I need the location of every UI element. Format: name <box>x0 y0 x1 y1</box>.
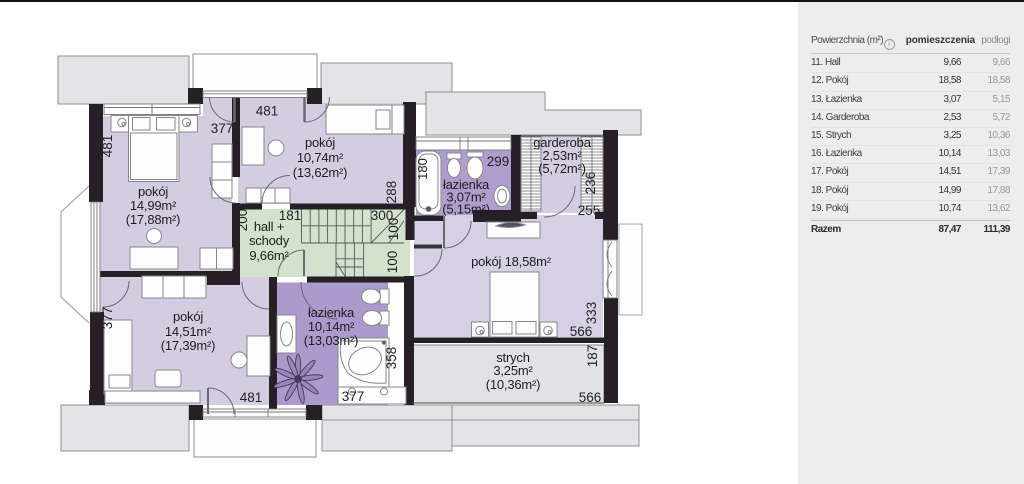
svg-text:14,51m²: 14,51m² <box>165 324 212 339</box>
svg-text:14,99m²: 14,99m² <box>130 198 177 213</box>
svg-text:566: 566 <box>570 324 593 339</box>
svg-text:(5,72m²): (5,72m²) <box>538 161 586 176</box>
svg-text:255: 255 <box>578 203 601 218</box>
svg-text:3,25m²: 3,25m² <box>493 363 533 378</box>
svg-text:hall +: hall + <box>254 219 284 234</box>
svg-text:358: 358 <box>384 347 399 370</box>
svg-text:pokój 18,58m²: pokój 18,58m² <box>471 254 552 269</box>
svg-text:(17,88m²): (17,88m²) <box>126 212 181 227</box>
svg-text:pokój: pokój <box>138 184 168 199</box>
svg-text:(17,39m²): (17,39m²) <box>161 338 216 353</box>
svg-text:pokój: pokój <box>305 135 335 150</box>
svg-text:288: 288 <box>384 181 399 204</box>
svg-text:180: 180 <box>415 158 430 180</box>
svg-text:377: 377 <box>100 307 115 330</box>
svg-text:333: 333 <box>584 302 599 325</box>
svg-text:481: 481 <box>100 135 115 158</box>
svg-text:377: 377 <box>211 121 234 136</box>
svg-text:187: 187 <box>585 345 600 368</box>
svg-text:pokój: pokój <box>173 309 203 324</box>
svg-text:377: 377 <box>342 389 365 404</box>
svg-text:100: 100 <box>385 251 400 274</box>
svg-text:299: 299 <box>487 154 510 169</box>
svg-text:9,66m²: 9,66m² <box>249 248 289 263</box>
svg-text:481: 481 <box>256 104 279 119</box>
svg-text:łazienka: łazienka <box>308 305 355 320</box>
svg-text:(5,15m²): (5,15m²) <box>442 202 490 217</box>
svg-text:200: 200 <box>235 209 250 232</box>
svg-text:100: 100 <box>386 218 401 241</box>
svg-text:schody: schody <box>249 233 290 248</box>
svg-text:(13,03m²): (13,03m²) <box>304 333 359 348</box>
svg-text:(10,36m²): (10,36m²) <box>486 377 541 392</box>
svg-text:10,14m²: 10,14m² <box>308 319 355 334</box>
svg-text:(13,62m²): (13,62m²) <box>293 165 348 180</box>
svg-text:481: 481 <box>240 390 263 405</box>
svg-text:566: 566 <box>579 390 602 405</box>
svg-text:10,74m²: 10,74m² <box>297 150 344 165</box>
